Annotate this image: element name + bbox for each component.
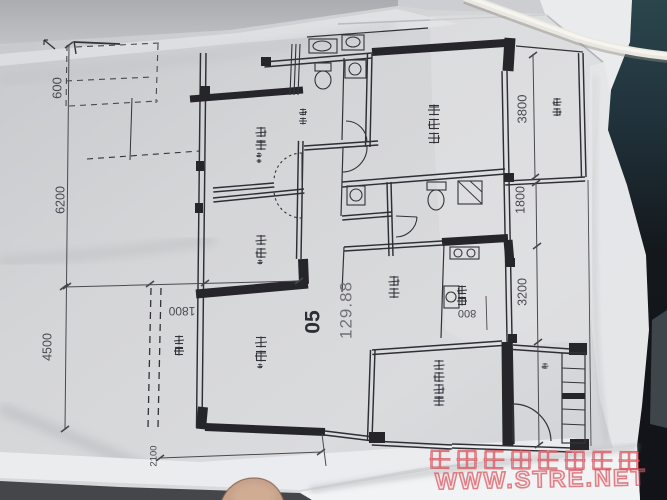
svg-text:3800: 3800: [514, 95, 529, 124]
svg-text:WWW.STRE.NET: WWW.STRE.NET: [435, 464, 647, 494]
svg-text:2100: 2100: [149, 445, 160, 466]
svg-text:1800: 1800: [168, 304, 195, 318]
svg-text:1800: 1800: [513, 186, 527, 214]
svg-text:4500: 4500: [40, 333, 54, 361]
svg-text:05: 05: [302, 310, 325, 334]
svg-text:6200: 6200: [53, 186, 67, 214]
svg-text:800: 800: [458, 307, 476, 319]
svg-text:3200: 3200: [515, 278, 529, 306]
svg-text:600: 600: [49, 77, 64, 99]
svg-text:129.88: 129.88: [336, 281, 355, 339]
